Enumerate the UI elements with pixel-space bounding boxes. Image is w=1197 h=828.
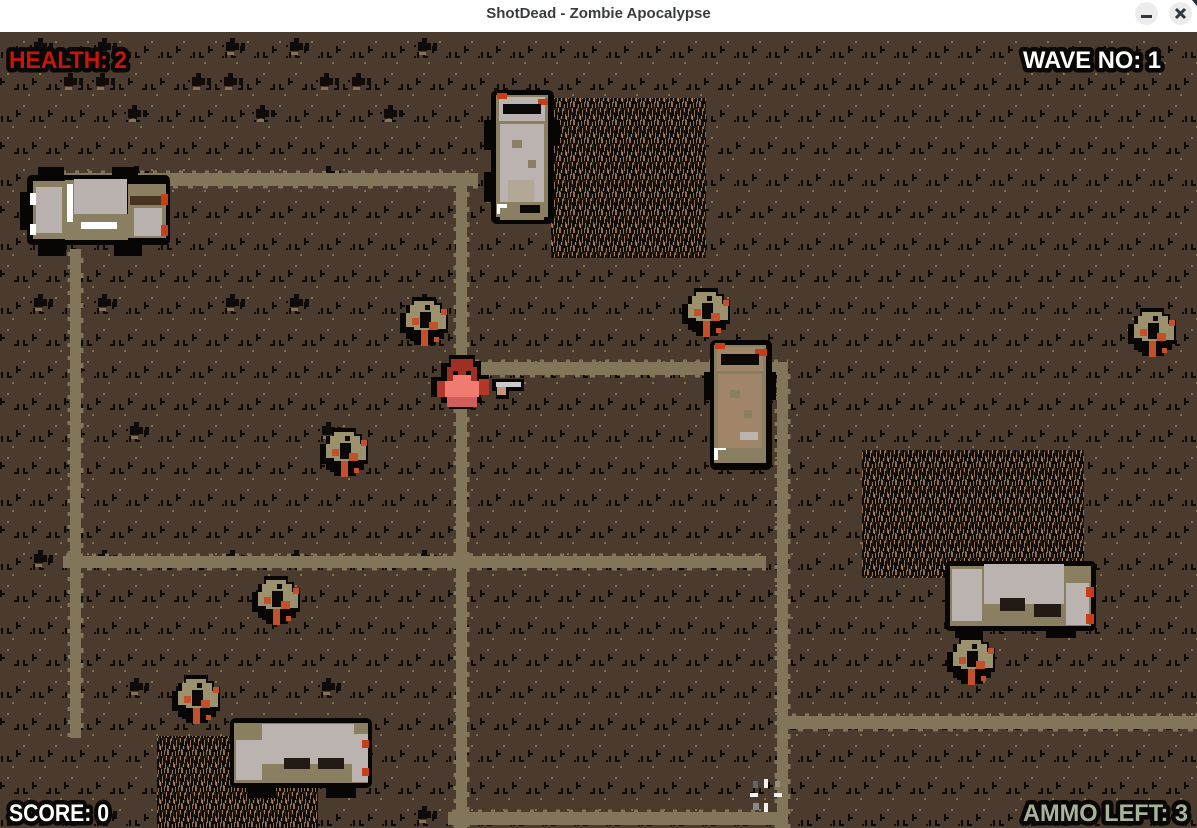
svg-text:SCORE: 0: SCORE: 0	[9, 800, 109, 827]
svg-text:HEALTH: 2: HEALTH: 2	[9, 47, 127, 74]
svg-text:WAVE NO: 1: WAVE NO: 1	[1023, 47, 1161, 74]
svg-text:AMMO LEFT: 3: AMMO LEFT: 3	[1023, 800, 1188, 827]
